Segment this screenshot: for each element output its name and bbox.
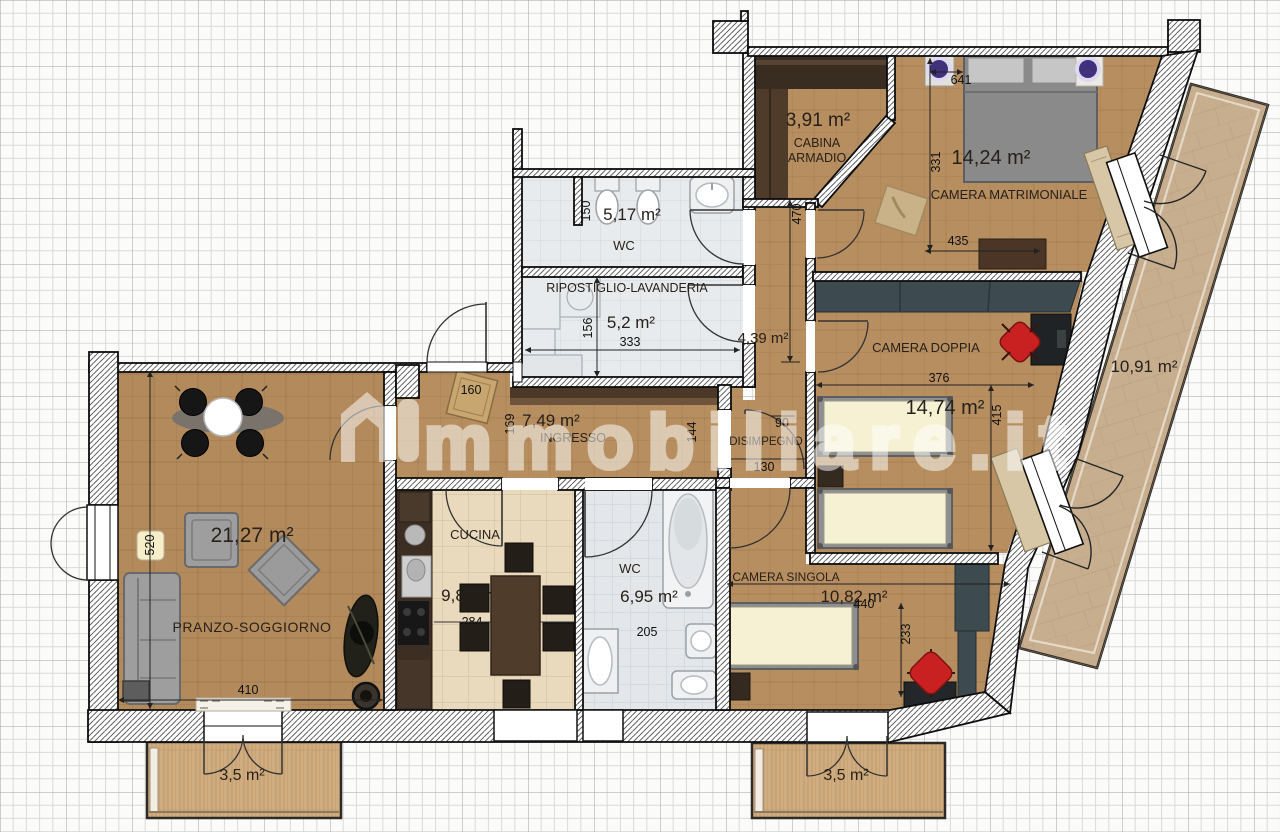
svg-text:WC: WC xyxy=(619,561,641,576)
svg-text:435: 435 xyxy=(948,234,969,248)
svg-text:331: 331 xyxy=(929,152,943,173)
svg-text:ARMADIO: ARMADIO xyxy=(788,151,847,165)
svg-text:3,5 m²: 3,5 m² xyxy=(219,767,265,784)
svg-text:150: 150 xyxy=(579,201,593,222)
svg-text:333: 333 xyxy=(620,335,641,349)
svg-text:CAMERA SINGOLA: CAMERA SINGOLA xyxy=(732,570,839,584)
svg-text:4,39 m²: 4,39 m² xyxy=(738,330,789,347)
svg-text:mmobiliare.it: mmobiliare.it xyxy=(424,400,1079,485)
svg-text:14,24 m²: 14,24 m² xyxy=(952,147,1031,169)
svg-text:641: 641 xyxy=(951,73,972,87)
svg-text:CAMERA DOPPIA: CAMERA DOPPIA xyxy=(872,340,980,355)
svg-text:CAMERA MATRIMONIALE: CAMERA MATRIMONIALE xyxy=(931,187,1088,202)
svg-text:5,17 m²: 5,17 m² xyxy=(603,205,661,224)
svg-text:PRANZO-SOGGIORNO: PRANZO-SOGGIORNO xyxy=(173,619,332,635)
svg-text:205: 205 xyxy=(637,625,658,639)
svg-text:160: 160 xyxy=(461,383,482,397)
svg-text:376: 376 xyxy=(929,371,950,385)
svg-text:470: 470 xyxy=(790,204,804,225)
svg-text:CABINA: CABINA xyxy=(794,136,841,150)
svg-text:5,2 m²: 5,2 m² xyxy=(607,313,656,332)
svg-text:21,27 m²: 21,27 m² xyxy=(211,524,294,547)
svg-text:3,91 m²: 3,91 m² xyxy=(786,110,850,131)
svg-text:RIPOSTIGLIO-LAVANDERIA: RIPOSTIGLIO-LAVANDERIA xyxy=(546,281,708,295)
svg-text:156: 156 xyxy=(581,318,595,339)
svg-text:6,95 m²: 6,95 m² xyxy=(620,587,678,606)
svg-text:410: 410 xyxy=(238,683,259,697)
svg-text:10,91 m²: 10,91 m² xyxy=(1110,357,1177,376)
svg-text:233: 233 xyxy=(899,624,913,645)
svg-text:CUCINA: CUCINA xyxy=(450,527,500,542)
svg-text:WC: WC xyxy=(613,238,635,253)
svg-text:440: 440 xyxy=(854,597,875,611)
svg-text:520: 520 xyxy=(143,535,157,556)
svg-text:3,5 m²: 3,5 m² xyxy=(823,767,869,784)
